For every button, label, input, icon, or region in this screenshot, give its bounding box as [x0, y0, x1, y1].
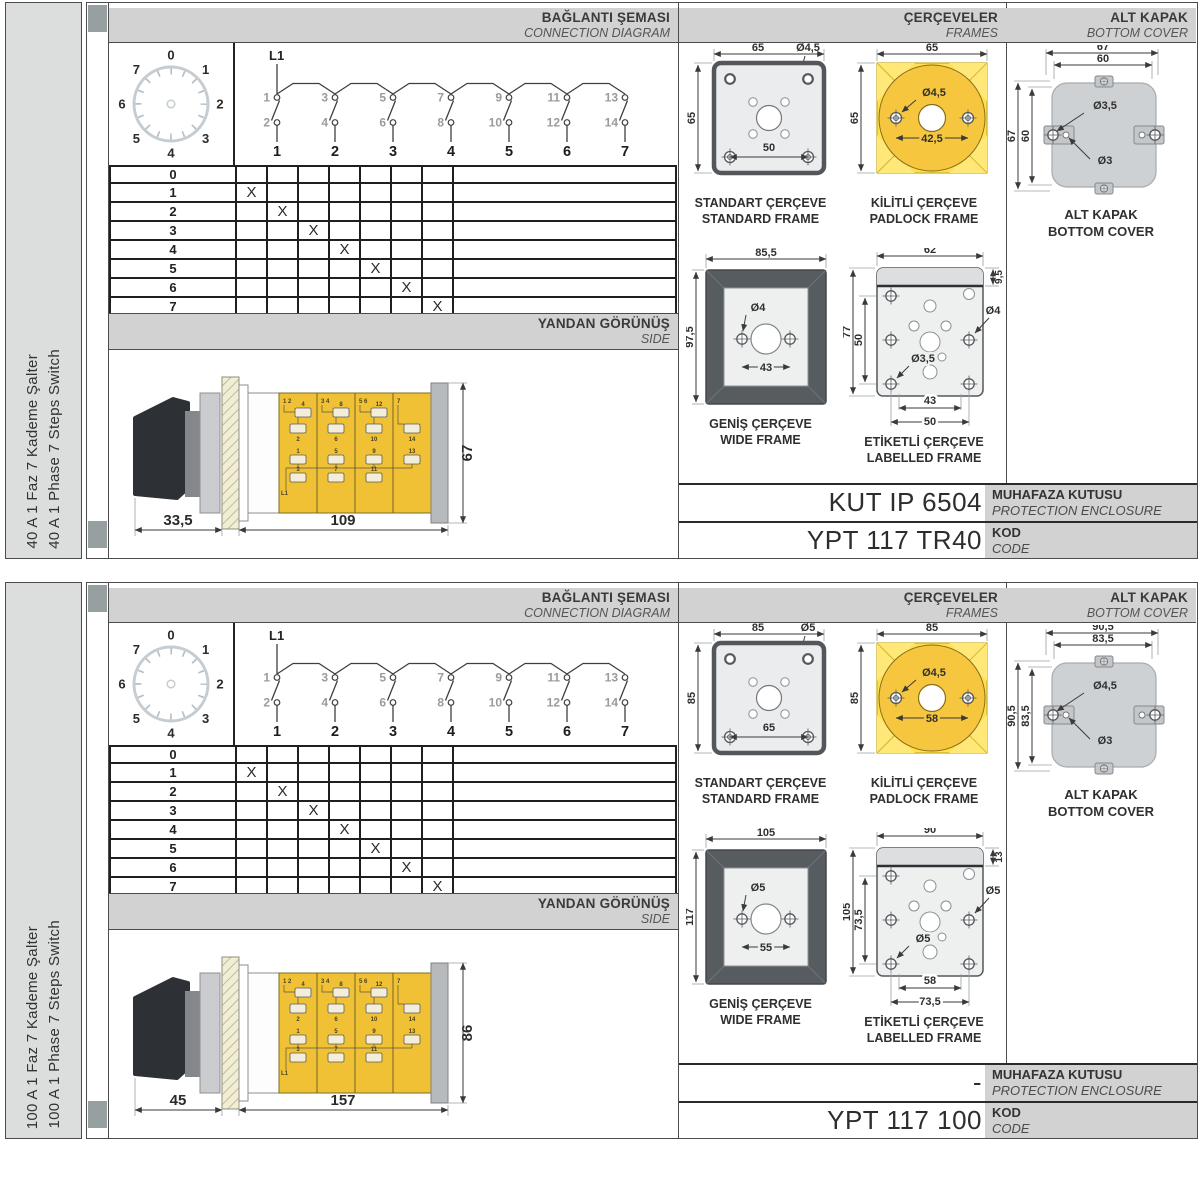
- svg-text:2: 2: [263, 116, 270, 130]
- bottom-cover-drawing-wrap: 90,5 83,5 90,5 83,5: [1006, 625, 1196, 821]
- svg-text:5 6: 5 6: [359, 399, 368, 405]
- svg-text:Ø4: Ø4: [986, 305, 1002, 317]
- svg-text:L1: L1: [281, 491, 289, 497]
- svg-text:43: 43: [924, 395, 936, 407]
- table-row: 1X: [110, 763, 676, 782]
- svg-text:1 2: 1 2: [283, 979, 292, 985]
- wide-frame-drawing: 105 117 Ø5 55: [686, 828, 836, 996]
- wide-frame-caption: GENİŞ ÇERÇEVEWIDE FRAME: [709, 997, 812, 1028]
- svg-text:3: 3: [321, 91, 328, 105]
- step-contact-table: 0 1X 2X 3X 4X 5X 6X 7X: [109, 745, 677, 897]
- labelled-frame-drawing: 90 13 105 73,5: [843, 828, 1005, 1014]
- svg-text:6: 6: [563, 724, 571, 740]
- dial-pos: 6: [118, 677, 125, 692]
- standard-frame-caption: STANDART ÇERÇEVESTANDARD FRAME: [695, 776, 827, 807]
- binder-tab-bottom: [88, 1101, 107, 1128]
- svg-text:Ø5: Ø5: [916, 933, 931, 945]
- side-view-drawing: 1 2 4 2 1 3 3 4 8 6 5 7 5 6: [115, 354, 495, 554]
- svg-text:6: 6: [563, 144, 571, 160]
- svg-text:77: 77: [843, 326, 853, 338]
- product-section: 40 A 1 Faz 7 Kademe Şalter 40 A 1 Phase …: [5, 2, 1198, 560]
- svg-text:4: 4: [321, 696, 328, 710]
- svg-text:7: 7: [621, 724, 629, 740]
- connection-header: BAĞLANTI ŞEMASI CONNECTION DIAGRAM: [109, 8, 678, 43]
- dial-pos: 4: [167, 146, 175, 161]
- wide-frame-cell: 105 117 Ø5 55: [679, 828, 842, 1061]
- svg-text:Ø4,5: Ø4,5: [922, 87, 946, 99]
- wide-frame-caption: GENİŞ ÇERÇEVEWIDE FRAME: [709, 417, 812, 448]
- bottom-cover-title-en: BOTTOM COVER: [1006, 606, 1188, 621]
- svg-text:105: 105: [843, 903, 853, 921]
- code-row: YPT 117 100 KOD CODE: [679, 1103, 1197, 1139]
- svg-text:Ø5: Ø5: [800, 623, 815, 634]
- labelled-frame-caption: ETİKETLİ ÇERÇEVELABELLED FRAME: [864, 1015, 983, 1046]
- svg-text:12: 12: [547, 696, 561, 710]
- svg-text:67: 67: [1006, 130, 1018, 142]
- wide-frame-drawing: 85,5 97,5 Ø4 43: [686, 248, 836, 416]
- svg-text:9: 9: [495, 91, 502, 105]
- svg-text:83,5: 83,5: [1092, 633, 1113, 645]
- svg-text:5: 5: [505, 724, 513, 740]
- svg-text:1: 1: [273, 724, 281, 740]
- side-view-title-en: SIDE: [109, 912, 670, 927]
- table-row: 4X: [110, 240, 676, 259]
- padlock-frame-caption: KİLİTLİ ÇERÇEVEPADLOCK FRAME: [870, 196, 979, 227]
- frames-title-en: FRAMES: [679, 26, 998, 41]
- svg-text:50: 50: [924, 416, 936, 428]
- svg-text:73,5: 73,5: [919, 996, 940, 1008]
- dial-pos: 7: [133, 642, 140, 657]
- enclosure-label: MUHAFAZA KUTUSU PROTECTION ENCLOSURE: [985, 1065, 1197, 1101]
- svg-text:10: 10: [371, 437, 378, 443]
- dial-box: 0 1 2 3 4 5 6 7: [109, 623, 235, 745]
- side-label-column: 100 A 1 Faz 7 Kademe Şalter 100 A 1 Phas…: [5, 582, 82, 1139]
- connection-header: BAĞLANTI ŞEMASI CONNECTION DIAGRAM: [109, 588, 678, 623]
- svg-text:Ø5: Ø5: [750, 882, 765, 894]
- main-area: BAĞLANTI ŞEMASI CONNECTION DIAGRAM 0 1 2…: [109, 3, 1197, 558]
- svg-text:90,5: 90,5: [1092, 625, 1113, 633]
- dim-length: 157: [330, 1092, 355, 1109]
- content-box: BAĞLANTI ŞEMASI CONNECTION DIAGRAM 0 1 2…: [86, 582, 1198, 1139]
- dial-pos: 7: [133, 62, 140, 77]
- svg-text:12: 12: [376, 982, 383, 988]
- enclosure-row: KUT IP 6504 MUHAFAZA KUTUSU PROTECTION E…: [679, 485, 1197, 523]
- enclosure-label: MUHAFAZA KUTUSU PROTECTION ENCLOSURE: [985, 485, 1197, 521]
- connection-panel: BAĞLANTI ŞEMASI CONNECTION DIAGRAM 0 1 2…: [109, 3, 679, 558]
- frames-panel: ÇERÇEVELER FRAMES 85 Ø5 85: [679, 583, 1006, 1138]
- svg-text:Ø3: Ø3: [1098, 735, 1113, 747]
- side-label-column: 40 A 1 Faz 7 Kademe Şalter 40 A 1 Phase …: [5, 2, 82, 559]
- dim-height: 67: [459, 445, 476, 462]
- svg-text:83,5: 83,5: [1020, 705, 1032, 726]
- bottom-cover-title-en: BOTTOM COVER: [1006, 26, 1188, 41]
- svg-text:5 6: 5 6: [359, 979, 368, 985]
- bottom-cover-drawing-wrap: 67 60 67 60: [1006, 45, 1196, 241]
- svg-text:65: 65: [751, 43, 763, 54]
- product-title-tr: 100 A 1 Faz 7 Kademe Şalter: [24, 926, 41, 1129]
- dial-pos: 2: [216, 97, 223, 112]
- table-row: 6X: [110, 858, 676, 877]
- table-row: 0: [110, 746, 676, 763]
- svg-text:7: 7: [437, 671, 444, 685]
- dial-pos: 3: [202, 711, 209, 726]
- dial-pos: 1: [202, 62, 209, 77]
- svg-text:8: 8: [437, 116, 444, 130]
- contact-diagram: L1 121 342: [235, 43, 677, 165]
- table-row: 3X: [110, 801, 676, 820]
- side-view-title-tr: YANDAN GÖRÜNÜŞ: [109, 896, 670, 912]
- svg-text:7: 7: [621, 144, 629, 160]
- code-table: - MUHAFAZA KUTUSU PROTECTION ENCLOSURE Y…: [679, 1063, 1197, 1138]
- svg-text:12: 12: [376, 402, 383, 408]
- svg-text:3: 3: [389, 144, 397, 160]
- side-view-drawing: 1 2 4 2 1 3 3 4 8 6 5 7 5 6: [115, 934, 495, 1134]
- svg-text:3: 3: [321, 671, 328, 685]
- svg-text:85: 85: [686, 692, 698, 704]
- svg-text:2: 2: [331, 724, 339, 740]
- svg-text:85,5: 85,5: [755, 248, 776, 259]
- svg-text:2: 2: [331, 144, 339, 160]
- svg-text:14: 14: [409, 1017, 416, 1023]
- svg-text:58: 58: [926, 713, 938, 725]
- svg-text:Ø4,5: Ø4,5: [1093, 680, 1117, 692]
- svg-text:5: 5: [379, 91, 386, 105]
- labelled-frame-cell: 90 13 105 73,5: [842, 828, 1006, 1061]
- catalog-page: { "sections": [ { "side_label_tr": "40 A…: [0, 0, 1200, 1200]
- binder-tab-top: [88, 585, 107, 612]
- svg-text:Ø4: Ø4: [750, 302, 766, 314]
- side-view-area: 1 2 4 2 1 3 3 4 8 6 5 7 5 6: [109, 930, 677, 1138]
- svg-text:4: 4: [447, 724, 455, 740]
- padlock-frame-cell: 65 65 Ø4,5 42,5: [842, 43, 1006, 248]
- svg-text:65: 65: [762, 722, 774, 734]
- svg-text:65: 65: [926, 43, 938, 54]
- dial-box: 0 1 2 3 4 5 6 7: [109, 43, 235, 165]
- dim-length: 109: [330, 512, 355, 529]
- svg-text:10: 10: [371, 1017, 378, 1023]
- svg-text:11: 11: [547, 91, 560, 105]
- connection-title-tr: BAĞLANTI ŞEMASI: [109, 590, 670, 606]
- svg-text:5: 5: [505, 144, 513, 160]
- bottom-cover-panel: ALT KAPAK BOTTOM COVER 67 60 67: [1006, 3, 1196, 558]
- svg-text:Ø3,5: Ø3,5: [911, 353, 935, 365]
- svg-text:13: 13: [605, 671, 619, 685]
- side-view-title-en: SIDE: [109, 332, 670, 347]
- enclosure-row: - MUHAFAZA KUTUSU PROTECTION ENCLOSURE: [679, 1065, 1197, 1103]
- bottom-cover-header: ALT KAPAK BOTTOM COVER: [1006, 588, 1196, 623]
- svg-text:6: 6: [379, 696, 386, 710]
- svg-text:60: 60: [1020, 130, 1032, 142]
- bottom-cover-title-tr: ALT KAPAK: [1006, 590, 1188, 606]
- dim-depth: 45: [170, 1092, 187, 1109]
- frames-title-tr: ÇERÇEVELER: [679, 10, 998, 26]
- svg-text:13: 13: [409, 449, 416, 455]
- dial-pos: 5: [133, 711, 140, 726]
- svg-text:65: 65: [849, 112, 861, 124]
- svg-text:4: 4: [321, 116, 328, 130]
- code-value: YPT 117 TR40: [679, 523, 985, 559]
- side-view-area: 1 2 4 2 1 3 3 4 8 6 5 7 5 6: [109, 350, 677, 558]
- svg-text:105: 105: [756, 828, 774, 839]
- product-section: 100 A 1 Faz 7 Kademe Şalter 100 A 1 Phas…: [5, 582, 1198, 1140]
- frames-header: ÇERÇEVELER FRAMES: [679, 8, 1006, 43]
- svg-text:4: 4: [447, 144, 455, 160]
- svg-text:62: 62: [924, 248, 936, 256]
- svg-text:3 4: 3 4: [321, 979, 330, 985]
- svg-text:L1: L1: [281, 1071, 289, 1077]
- dial-pos: 6: [118, 97, 125, 112]
- step-contact-table: 0 1X 2X 3X 4X 5X 6X 7X: [109, 165, 677, 317]
- code-label: KOD CODE: [985, 1103, 1197, 1139]
- standard-frame-cell: 65 Ø4,5 65 50: [679, 43, 842, 248]
- frames-header: ÇERÇEVELER FRAMES: [679, 588, 1006, 623]
- svg-text:11: 11: [547, 671, 560, 685]
- dial-pos: 0: [167, 628, 174, 643]
- svg-text:42,5: 42,5: [921, 133, 942, 145]
- rotary-dial-diagram: 0 1 2 3 4 5 6 7: [109, 43, 233, 163]
- frames-title-tr: ÇERÇEVELER: [679, 590, 998, 606]
- table-row: 5X: [110, 839, 676, 858]
- table-row: 2X: [110, 202, 676, 221]
- svg-text:8: 8: [437, 696, 444, 710]
- side-view-title-tr: YANDAN GÖRÜNÜŞ: [109, 316, 670, 332]
- svg-text:1: 1: [263, 91, 270, 105]
- frames-panel: ÇERÇEVELER FRAMES 65 Ø4,5 65: [679, 3, 1006, 558]
- svg-text:60: 60: [1097, 53, 1109, 65]
- svg-text:Ø3: Ø3: [1098, 155, 1113, 167]
- side-view-header: YANDAN GÖRÜNÜŞ SIDE: [109, 313, 678, 350]
- code-row: YPT 117 TR40 KOD CODE: [679, 523, 1197, 559]
- bottom-cover-title-tr: ALT KAPAK: [1006, 10, 1188, 26]
- dial-pos: 3: [202, 131, 209, 146]
- code-label: KOD CODE: [985, 523, 1197, 559]
- table-row: 2X: [110, 782, 676, 801]
- side-view-header: YANDAN GÖRÜNÜŞ SIDE: [109, 893, 678, 930]
- svg-text:97,5: 97,5: [686, 326, 696, 347]
- svg-text:50: 50: [853, 334, 865, 346]
- svg-text:117: 117: [686, 908, 696, 926]
- line-label: L1: [269, 48, 284, 63]
- binder-tab-bottom: [88, 521, 107, 548]
- frames-title-en: FRAMES: [679, 606, 998, 621]
- code-value: YPT 117 100: [679, 1103, 985, 1139]
- svg-text:2: 2: [263, 696, 270, 710]
- svg-text:55: 55: [759, 942, 771, 954]
- svg-text:50: 50: [762, 142, 774, 154]
- svg-text:90: 90: [924, 828, 936, 836]
- dim-height: 86: [459, 1025, 476, 1042]
- svg-text:67: 67: [1097, 45, 1109, 53]
- dial-pos: 5: [133, 131, 140, 146]
- switch-handle: [135, 979, 188, 1078]
- svg-text:58: 58: [924, 975, 936, 987]
- dial-pos: 0: [167, 48, 174, 63]
- labelled-frame-caption: ETİKETLİ ÇERÇEVELABELLED FRAME: [864, 435, 983, 466]
- svg-text:10: 10: [489, 116, 503, 130]
- bottom-cover-panel: ALT KAPAK BOTTOM COVER 90,5 83,5 90,5: [1006, 583, 1196, 1138]
- wide-frame-cell: 85,5 97,5 Ø4 43: [679, 248, 842, 481]
- connection-title-en: CONNECTION DIAGRAM: [109, 606, 670, 621]
- product-title-en: 100 A 1 Phase 7 Steps Switch: [46, 920, 63, 1129]
- table-row: 1X: [110, 183, 676, 202]
- svg-text:9,5: 9,5: [994, 270, 1005, 284]
- svg-text:13: 13: [409, 1029, 416, 1035]
- svg-text:73,5: 73,5: [853, 909, 865, 930]
- svg-text:10: 10: [489, 696, 503, 710]
- dial-pos: 1: [202, 642, 209, 657]
- svg-text:14: 14: [605, 116, 619, 130]
- svg-text:85: 85: [926, 623, 938, 634]
- svg-text:12: 12: [547, 116, 561, 130]
- switch-handle: [135, 399, 188, 498]
- labelled-frame-drawing: 62 9,5 77 50: [843, 248, 1005, 434]
- labelled-frame-cell: 62 9,5 77 50: [842, 248, 1006, 481]
- binder-strip: [87, 583, 109, 1138]
- contact-box: L1 121 342: [235, 623, 677, 745]
- svg-text:3: 3: [389, 724, 397, 740]
- enclosure-value: -: [679, 1065, 985, 1101]
- svg-text:13: 13: [605, 91, 619, 105]
- svg-text:1: 1: [263, 671, 270, 685]
- binder-tab-top: [88, 5, 107, 32]
- svg-text:3 4: 3 4: [321, 399, 330, 405]
- svg-text:5: 5: [379, 671, 386, 685]
- svg-text:7: 7: [437, 91, 444, 105]
- product-title-tr: 40 A 1 Faz 7 Kademe Şalter: [24, 354, 41, 549]
- rotary-dial-diagram: 0 1 2 3 4 5 6 7: [109, 623, 233, 743]
- padlock-frame-caption: KİLİTLİ ÇERÇEVEPADLOCK FRAME: [870, 776, 979, 807]
- table-row: 6X: [110, 278, 676, 297]
- dial-pos: 2: [216, 677, 223, 692]
- dim-depth: 33,5: [163, 512, 192, 529]
- bottom-cover-caption: ALT KAPAKBOTTOM COVER: [1048, 787, 1154, 821]
- svg-text:Ø3,5: Ø3,5: [1093, 100, 1117, 112]
- bottom-cover-drawing: 67 60 67 60: [1006, 45, 1196, 203]
- connection-title-en: CONNECTION DIAGRAM: [109, 26, 670, 41]
- svg-text:90,5: 90,5: [1006, 705, 1018, 726]
- contact-diagram: L1 121 342: [235, 623, 677, 745]
- main-area: BAĞLANTI ŞEMASI CONNECTION DIAGRAM 0 1 2…: [109, 583, 1197, 1138]
- svg-text:14: 14: [409, 437, 416, 443]
- connection-title-tr: BAĞLANTI ŞEMASI: [109, 10, 670, 26]
- svg-text:Ø4,5: Ø4,5: [922, 667, 946, 679]
- product-title-en: 40 A 1 Phase 7 Steps Switch: [46, 349, 63, 549]
- svg-text:1 2: 1 2: [283, 399, 292, 405]
- padlock-frame-drawing: 65 65 Ø4,5 42,5: [849, 43, 999, 195]
- standard-frame-drawing: 65 Ø4,5 65 50: [686, 43, 836, 195]
- bottom-cover-caption: ALT KAPAKBOTTOM COVER: [1048, 207, 1154, 241]
- padlock-frame-cell: 85 85 Ø4,5 58: [842, 623, 1006, 828]
- standard-frame-caption: STANDART ÇERÇEVESTANDARD FRAME: [695, 196, 827, 227]
- table-row: 3X: [110, 221, 676, 240]
- table-row: 0: [110, 166, 676, 183]
- bottom-cover-header: ALT KAPAK BOTTOM COVER: [1006, 8, 1196, 43]
- padlock-frame-drawing: 85 85 Ø4,5 58: [849, 623, 999, 775]
- dial-pos: 4: [167, 726, 175, 741]
- svg-text:14: 14: [605, 696, 619, 710]
- svg-text:43: 43: [759, 362, 771, 374]
- svg-text:6: 6: [379, 116, 386, 130]
- svg-text:Ø5: Ø5: [986, 885, 1001, 897]
- table-row: 4X: [110, 820, 676, 839]
- code-table: KUT IP 6504 MUHAFAZA KUTUSU PROTECTION E…: [679, 483, 1197, 558]
- svg-text:85: 85: [849, 692, 861, 704]
- content-box: BAĞLANTI ŞEMASI CONNECTION DIAGRAM 0 1 2…: [86, 2, 1198, 559]
- binder-strip: [87, 3, 109, 558]
- connection-panel: BAĞLANTI ŞEMASI CONNECTION DIAGRAM 0 1 2…: [109, 583, 679, 1138]
- line-label: L1: [269, 628, 284, 643]
- enclosure-value: KUT IP 6504: [679, 485, 985, 521]
- standard-frame-drawing: 85 Ø5 85 65: [686, 623, 836, 775]
- svg-text:65: 65: [686, 112, 698, 124]
- svg-text:1: 1: [273, 144, 281, 160]
- svg-text:Ø4,5: Ø4,5: [796, 43, 820, 54]
- table-row: 5X: [110, 259, 676, 278]
- standard-frame-cell: 85 Ø5 85 65: [679, 623, 842, 828]
- contact-box: L1 121 342: [235, 43, 677, 165]
- bottom-cover-drawing: 90,5 83,5 90,5 83,5: [1006, 625, 1196, 783]
- svg-text:9: 9: [495, 671, 502, 685]
- svg-text:13: 13: [994, 851, 1005, 863]
- svg-text:85: 85: [751, 623, 763, 634]
